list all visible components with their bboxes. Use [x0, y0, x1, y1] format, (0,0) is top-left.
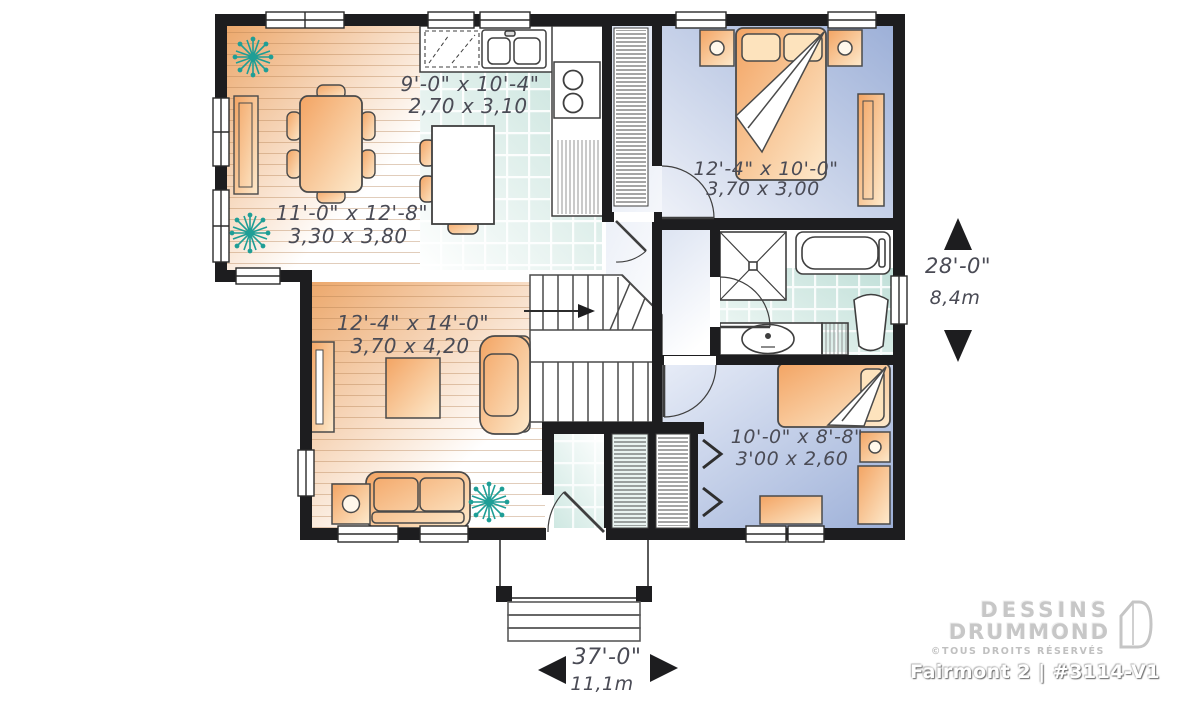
window: [428, 12, 474, 28]
pillow: [742, 34, 780, 61]
kitchen-dimensions-imperial: 9'-0" x 10'-4": [400, 74, 539, 94]
porch-post: [636, 586, 652, 602]
overall-width-metric: 11,1m: [570, 675, 633, 694]
dimension-arrow-left: [538, 656, 566, 684]
window: [236, 268, 280, 284]
lamp-icon: [838, 41, 852, 55]
bathtub: [796, 232, 890, 274]
bedroom2-dimensions-metric: 3'00 x 2,60: [736, 450, 849, 469]
window: [420, 526, 468, 542]
window: [480, 12, 530, 28]
brand-name-line2: DRUMMOND: [949, 620, 1110, 644]
overall-depth-metric: 8,4m: [930, 289, 981, 308]
overall-depth-imperial: 28'-0": [925, 256, 991, 277]
lamp-icon: [343, 496, 360, 513]
dimension-arrow-down: [944, 330, 972, 362]
plant-icon: [233, 37, 272, 76]
floor-plan-page: 9'-0" x 10'-4" 2,70 x 3,10 11'-0" x 12'-…: [0, 0, 1200, 711]
dresser: [760, 496, 822, 524]
brand-name-line1: DESSINS: [980, 598, 1110, 622]
dining-dimensions-metric: 3,30 x 3,80: [288, 226, 407, 246]
window: [676, 12, 726, 28]
drummond-logo-icon: [1121, 602, 1151, 647]
plant-icon: [469, 482, 508, 521]
armchair: [480, 336, 530, 434]
window: [266, 12, 344, 28]
bedroom1-dimensions-metric: 3,70 x 3,00: [706, 180, 819, 199]
lamp-icon: [710, 41, 724, 55]
window: [746, 526, 786, 542]
window: [213, 190, 229, 262]
coffee-table: [386, 358, 440, 418]
dining-table-set: [287, 85, 375, 203]
kitchen-dimensions-metric: 2,70 x 3,10: [408, 96, 527, 116]
plant-icon: [230, 213, 269, 252]
dimension-arrow-up: [944, 218, 972, 250]
dresser: [858, 466, 890, 524]
lamp-icon: [869, 441, 881, 453]
window: [298, 450, 314, 496]
porch-steps: [508, 602, 640, 641]
sofa: [366, 472, 470, 528]
window: [338, 526, 398, 542]
porch-post: [496, 586, 512, 602]
copyright-notice: ©TOUS DROITS RÉSERVÉS: [931, 646, 1105, 657]
window: [828, 12, 876, 28]
living-dimensions-metric: 3,70 x 4,20: [350, 336, 469, 356]
kitchen-island-table: [420, 126, 494, 234]
toilet: [854, 295, 888, 351]
window: [213, 98, 229, 166]
bedroom2-dimensions-imperial: 10'-0" x 8'-8": [731, 428, 863, 447]
bedroom1-dimensions-imperial: 12'-4" x 10'-0": [694, 160, 839, 179]
dresser: [858, 94, 884, 206]
dining-dimensions-imperial: 11'-0" x 12'-8": [276, 203, 428, 223]
plan-title: Fairmont 2 | #3114-V1: [910, 661, 1160, 683]
bed-double: [778, 363, 890, 427]
staircase: [524, 275, 662, 422]
kitchen-sink: [482, 30, 546, 68]
front-porch: [496, 540, 652, 641]
overall-width-imperial: 37'-0": [572, 647, 641, 669]
window: [891, 276, 907, 324]
dimension-arrow-right: [650, 654, 678, 682]
window: [788, 526, 824, 542]
stove: [554, 62, 600, 118]
living-dimensions-imperial: 12'-4" x 14'-0": [337, 313, 489, 333]
sideboard: [234, 96, 258, 194]
